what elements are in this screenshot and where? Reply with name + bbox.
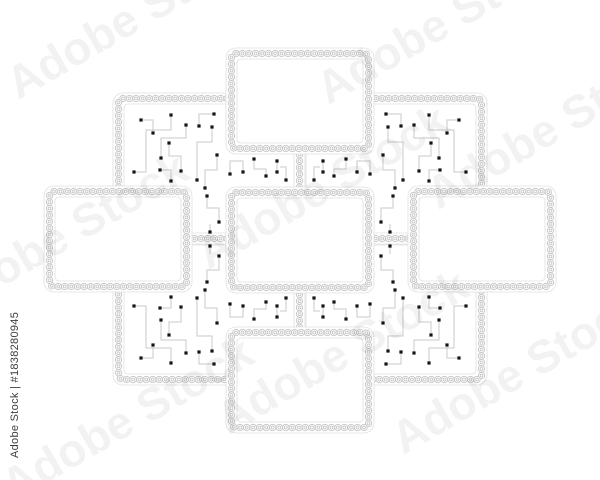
stock-image-preview: Adobe StockAdobe StockAdobe StockAdobe S…	[0, 0, 600, 480]
frames-circuit-artwork: Adobe StockAdobe StockAdobe StockAdobe S…	[0, 0, 600, 480]
watermark-credit-text: Adobe Stock | #1838280945	[9, 312, 21, 458]
